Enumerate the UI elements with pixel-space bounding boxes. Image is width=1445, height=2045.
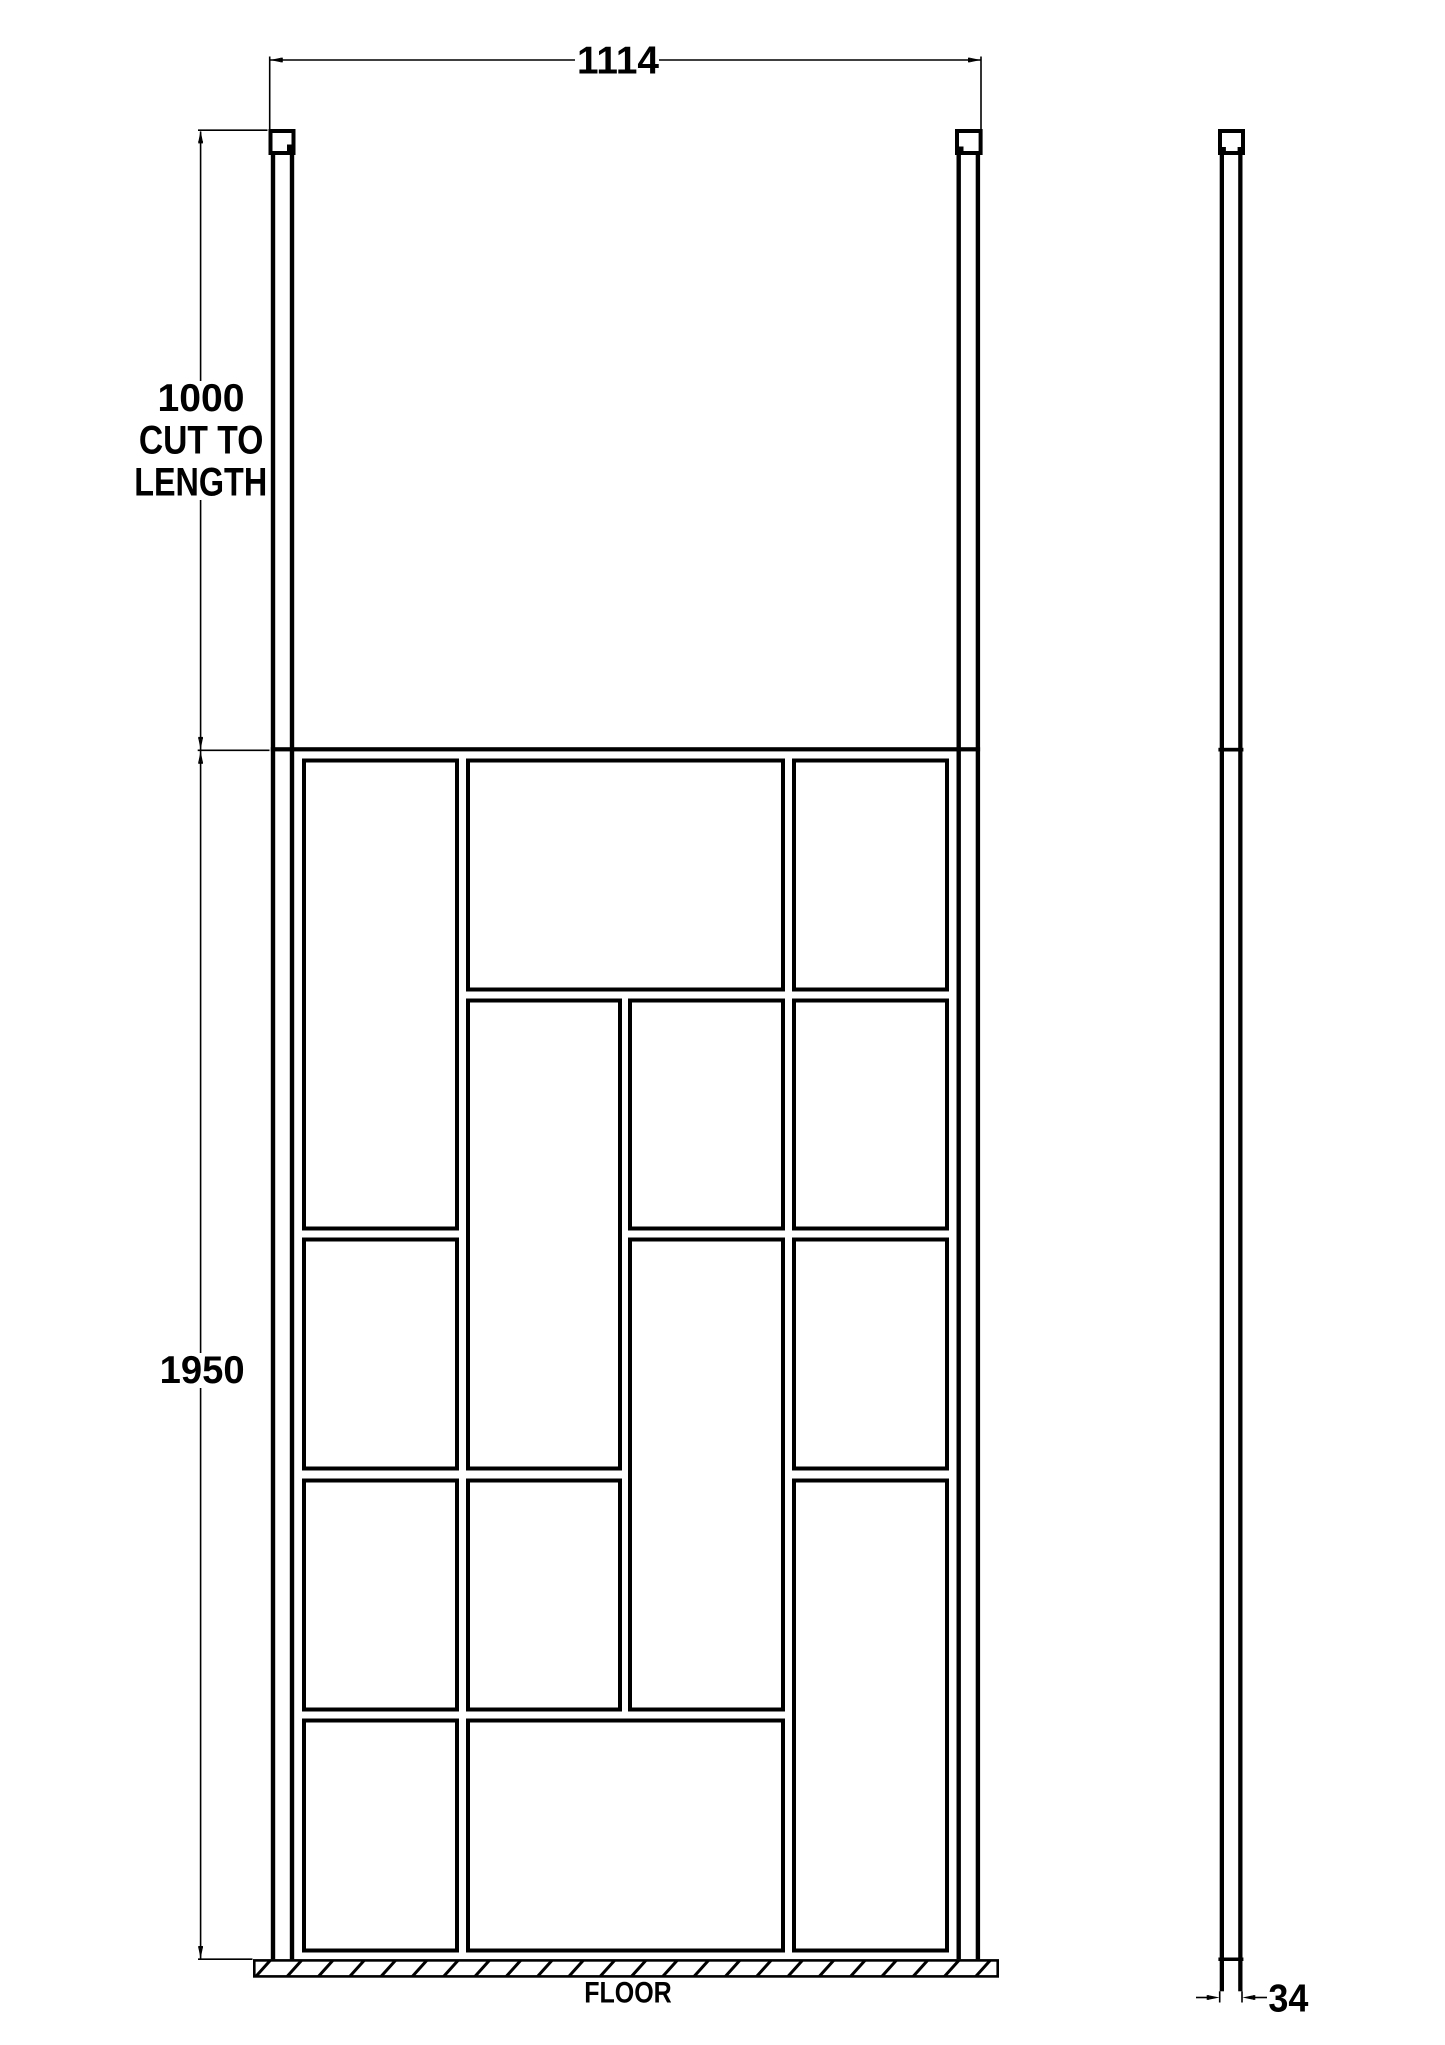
svg-text:34: 34 [1268,1977,1308,2020]
svg-text:1950: 1950 [160,1349,245,1392]
svg-text:LENGTH: LENGTH [134,460,267,504]
svg-text:1114: 1114 [577,40,659,83]
svg-text:FLOOR: FLOOR [584,1976,672,2009]
svg-text:CUT TO: CUT TO [139,419,264,463]
svg-text:1000: 1000 [158,377,245,420]
